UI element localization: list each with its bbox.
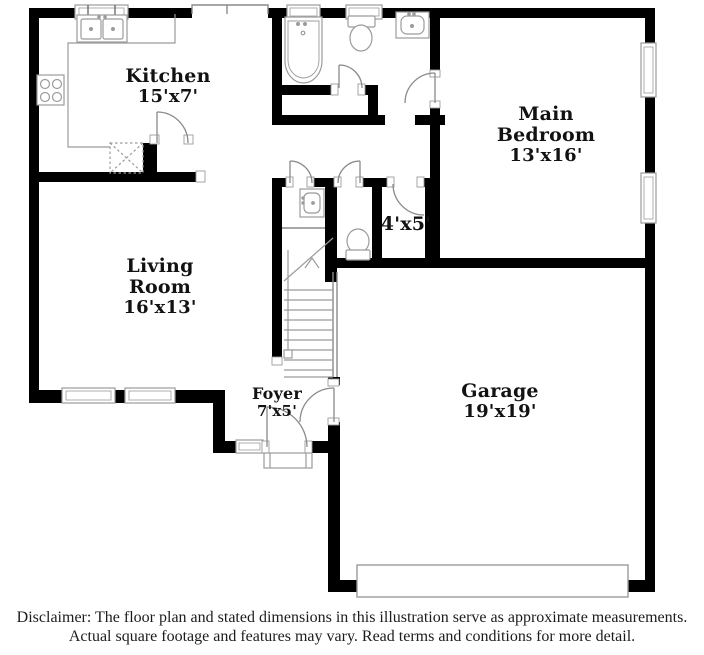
label-kitchen: Kitchen 15'x7'	[88, 66, 248, 107]
main-bedroom-dims: 13'x16'	[491, 146, 601, 166]
kitchen-sink	[77, 15, 127, 42]
wall-bath-south	[272, 85, 336, 95]
garage-name: Garage	[440, 381, 560, 402]
wall-hall-north	[272, 115, 385, 125]
stair-newel-post	[284, 350, 292, 358]
wall-bath-left	[272, 8, 282, 125]
foyer-sidelight-window	[236, 440, 263, 453]
bedroom-window-2	[641, 173, 656, 223]
living-room-window-2	[125, 388, 175, 403]
disclaimer: Disclaimer: The floor plan and stated di…	[0, 608, 704, 646]
label-garage: Garage 19'x19'	[440, 381, 560, 422]
pantry-cabinet	[110, 143, 143, 173]
living-room-window-1	[62, 388, 115, 403]
wall-bedroom-south	[325, 258, 655, 268]
disclaimer-line-2: Actual square footage and features may v…	[0, 627, 704, 646]
floor-plan-page: Kitchen 15'x7' Main Bedroom 13'x16' Livi…	[0, 0, 704, 655]
top-wall-notch	[192, 5, 268, 14]
garage-dims: 19'x19'	[440, 402, 560, 422]
bathroom-vanity-sink	[396, 12, 429, 38]
kitchen-door	[157, 112, 188, 143]
label-foyer: Foyer 7'x5'	[237, 385, 317, 419]
bedroom-window-1	[641, 43, 656, 97]
bedroom-door	[405, 73, 435, 103]
living-room-dims: 16'x13'	[116, 298, 204, 318]
wall-left-exterior	[29, 8, 39, 403]
label-living-room: Living Room 16'x13'	[116, 256, 204, 318]
wall-living-bottom	[29, 390, 62, 403]
label-main-bedroom: Main Bedroom 13'x16'	[491, 104, 601, 166]
wall-kitchen-door-stub	[143, 143, 157, 173]
wall-living-right	[272, 178, 282, 365]
porch-step	[264, 453, 312, 468]
living-room-name: Living Room	[116, 256, 204, 298]
label-closet: 4'x5'	[366, 214, 446, 235]
stair-direction-arrow	[305, 258, 319, 268]
closet-dims: 4'x5'	[366, 214, 446, 235]
bathtub-icon	[285, 17, 322, 83]
wall-right-exterior	[645, 8, 655, 43]
disclaimer-line-1: Disclaimer: The floor plan and stated di…	[0, 608, 704, 627]
garage-door	[357, 565, 628, 597]
kitchen-name: Kitchen	[88, 66, 248, 87]
stove-icon	[37, 75, 64, 105]
toilet-icon	[348, 16, 375, 51]
foyer-name: Foyer	[237, 385, 317, 403]
wall-bedroom-left	[430, 8, 440, 75]
foyer-dims: 7'x5'	[237, 403, 317, 420]
kitchen-dims: 15'x7'	[88, 87, 248, 107]
powder-room-vanity-sink	[300, 189, 324, 217]
closet-door	[393, 184, 424, 215]
main-bedroom-name: Main Bedroom	[491, 104, 601, 146]
